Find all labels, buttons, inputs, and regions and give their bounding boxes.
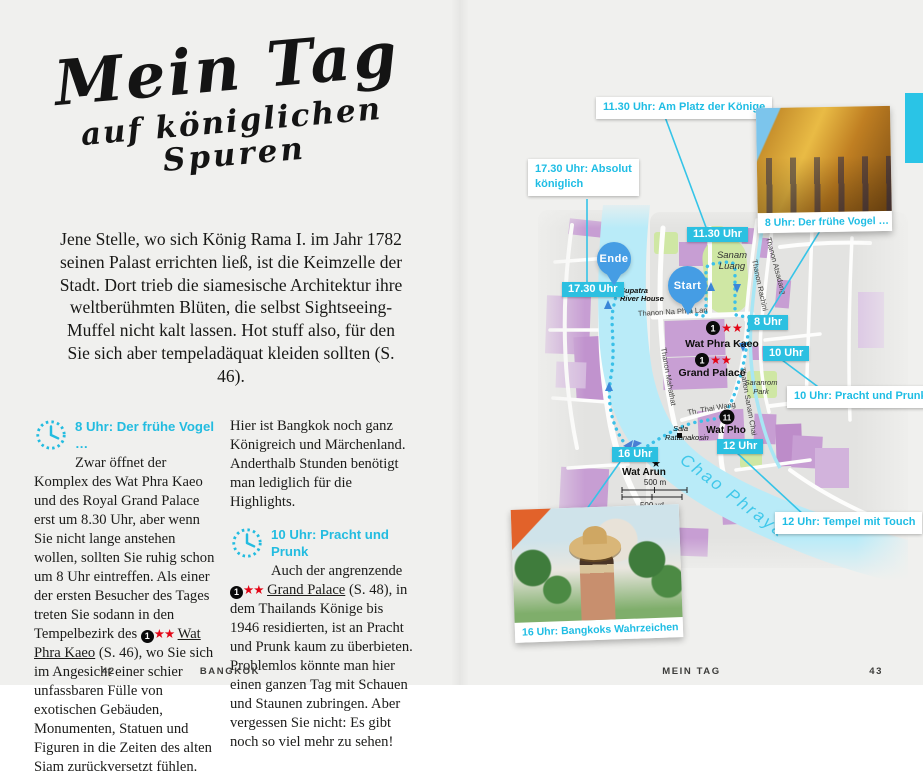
body-text: Auch der angrenzende	[271, 563, 402, 579]
straw-hat	[569, 533, 622, 561]
callout-1130: 11.30 Uhr: Am Platz der Könige	[596, 97, 772, 119]
body-text: (S. 46), wo Sie sich im Angesicht einer …	[34, 645, 213, 775]
footer-section-left: BANGKOK	[0, 666, 460, 677]
section-10-uhr: 10 Uhr: Pracht und Prunk Auch der angren…	[230, 525, 416, 752]
pin-label: Start	[674, 280, 702, 292]
chapter-tab	[905, 93, 923, 163]
page-number-right: 43	[869, 666, 883, 677]
pin-label: Ende	[600, 253, 629, 265]
route-end-pin: Ende	[597, 242, 631, 276]
photo-wat-arun-garden: 16 Uhr: Bangkoks Wahrzeichen	[511, 504, 684, 643]
photo-golden-temple: 8 Uhr: Der frühe Vogel …	[756, 106, 892, 233]
time-box-12: 12 Uhr	[717, 439, 763, 454]
callout-12: 12 Uhr: Tempel mit Touch	[775, 512, 922, 534]
section-body: Zwar öffnet der Komplex des Wat Phra Kae…	[34, 454, 220, 776]
time-box-1130: 11.30 Uhr	[687, 227, 748, 242]
text-column-2: Hier ist Bangkok noch ganz Königreich un…	[230, 417, 416, 752]
right-page: Thanon Na Phra Lan Thanon Atsadang Thano…	[460, 0, 923, 685]
left-page: Mein Tag auf königlichen Spuren Jene Ste…	[0, 0, 460, 685]
callout-10: 10 Uhr: Pracht und Prunk	[787, 386, 923, 408]
time-box-16: 16 Uhr	[612, 447, 658, 462]
time-box-10: 10 Uhr	[763, 346, 809, 361]
poi-number-badge: 1	[141, 630, 154, 643]
callout-line: königlich	[535, 177, 632, 192]
lead-paragraph: Hier ist Bangkok noch ganz Königreich un…	[230, 417, 416, 512]
tourist-figure	[579, 552, 615, 623]
poi-link-grand-palace: Grand Palace	[267, 582, 345, 598]
route-start-pin: Start	[668, 266, 707, 305]
time-box-8: 8 Uhr	[748, 315, 788, 330]
footer-section-right: MEIN TAG	[460, 666, 923, 677]
rating-stars: ★★	[243, 582, 263, 597]
book-spread: Mein Tag auf königlichen Spuren Jene Ste…	[0, 0, 923, 685]
photo-image	[511, 504, 683, 623]
photo-image	[756, 106, 892, 213]
section-body: Auch der angrenzende 1★★ Grand Palace (S…	[230, 562, 416, 752]
clock-icon	[34, 418, 68, 452]
poi-number-badge: 1	[230, 586, 243, 599]
callout-line: 17.30 Uhr: Absolut	[535, 162, 632, 177]
body-text: Zwar öffnet der Komplex des Wat Phra Kae…	[34, 455, 214, 642]
clock-icon	[230, 526, 264, 560]
callout-1730: 17.30 Uhr: Absolut königlich	[528, 159, 639, 196]
intro-paragraph: Jene Stelle, wo sich König Rama I. im Ja…	[58, 228, 404, 387]
page-gutter	[451, 0, 469, 685]
text-column-1: 8 Uhr: Der frühe Vogel … Zwar öffnet der…	[34, 417, 220, 777]
section-8-uhr: 8 Uhr: Der frühe Vogel … Zwar öffnet der…	[34, 417, 220, 777]
photo-caption: 8 Uhr: Der frühe Vogel …	[758, 211, 892, 233]
rating-stars: ★★	[154, 626, 174, 641]
page-title: Mein Tag auf königlichen Spuren	[30, 21, 430, 188]
scale-metric: 500 m	[644, 478, 667, 487]
